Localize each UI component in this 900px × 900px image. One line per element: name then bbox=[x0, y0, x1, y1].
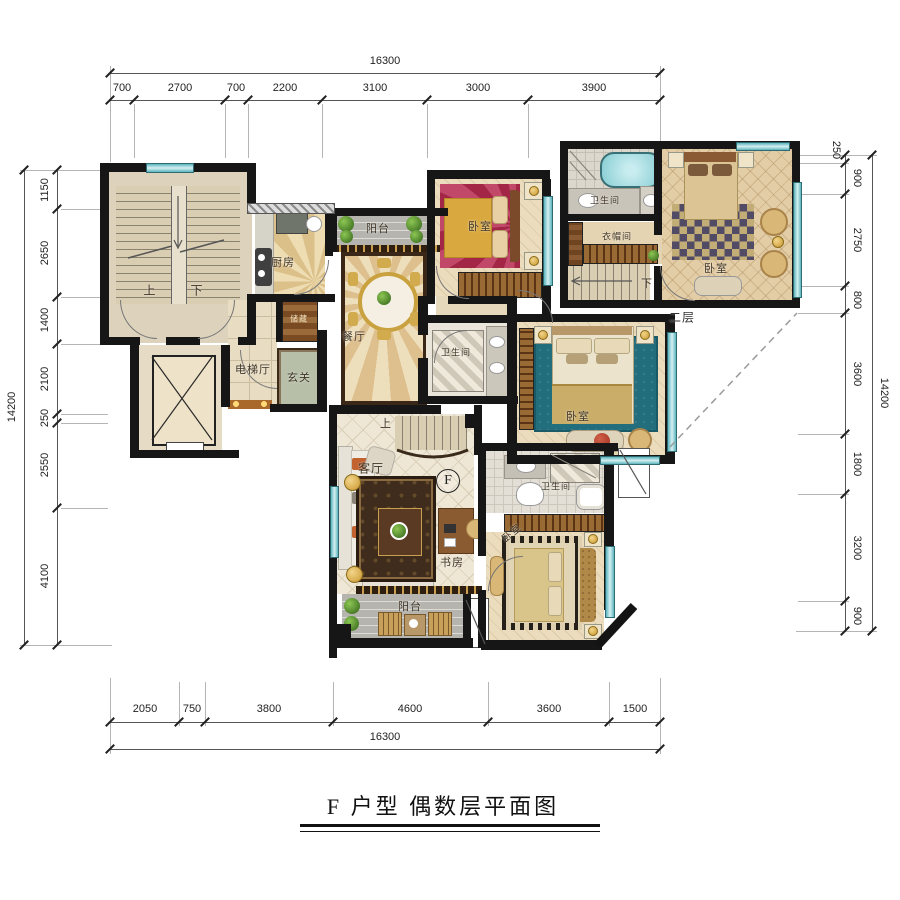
room-label-dining: 餐厅 bbox=[342, 328, 366, 344]
room-label-bedroom-top: 卧室 bbox=[468, 218, 492, 234]
diagonal-wall bbox=[597, 606, 634, 646]
stair-up-label: 上 bbox=[143, 282, 156, 299]
room-label-balcony-top: 阳台 bbox=[366, 220, 390, 236]
elevator-x bbox=[152, 357, 212, 440]
shower-corner-lines bbox=[570, 151, 596, 180]
stair-down-label-2f: 下 bbox=[641, 275, 653, 291]
room-label-kitchen: 厨房 bbox=[271, 254, 295, 270]
room-label-balcony-bottom: 阳台 bbox=[398, 598, 422, 614]
ac-diagonal bbox=[466, 600, 485, 644]
title-rule-thick bbox=[300, 824, 600, 827]
line-art-overlay bbox=[0, 0, 900, 900]
stair-arrow bbox=[174, 196, 182, 248]
shower-corner-lines bbox=[552, 455, 596, 478]
projection-dashed-line bbox=[670, 313, 797, 447]
stair-up-label-inner: 上 bbox=[380, 415, 392, 431]
stair-down-label: 下 bbox=[190, 282, 203, 299]
title-rule-thin bbox=[300, 831, 600, 832]
floor-plan-page: 16300 700 2700 700 2200 3100 3000 3900 2… bbox=[0, 0, 900, 900]
room-label-bath-mid: 卫生间 bbox=[441, 346, 471, 359]
unit-marker-circle: F bbox=[436, 469, 460, 493]
stair-arrow-2f bbox=[572, 277, 632, 285]
room-label-cloakroom: 衣帽间 bbox=[602, 230, 632, 243]
room-label-bath-2f: 卫生间 bbox=[590, 194, 620, 207]
room-label-study: 书房 bbox=[440, 554, 464, 570]
room-label-bath-br: 卫生间 bbox=[541, 480, 571, 493]
stair-rail-curve bbox=[397, 450, 468, 457]
room-label-storage: 储藏 bbox=[290, 314, 308, 325]
room-label-elevator-hall: 电梯厅 bbox=[235, 361, 271, 377]
room-label-bedroom-master: 卧室 bbox=[566, 408, 590, 424]
room-label-bedroom-2f: 卧室 bbox=[704, 260, 728, 276]
page-title: F 户型 偶数层平面图 bbox=[327, 789, 559, 821]
room-label-living: 客厅 bbox=[358, 460, 384, 477]
floor-note-label: 二层 bbox=[669, 309, 695, 326]
ac-diagonal bbox=[620, 450, 646, 494]
room-label-foyer: 玄关 bbox=[287, 369, 311, 385]
